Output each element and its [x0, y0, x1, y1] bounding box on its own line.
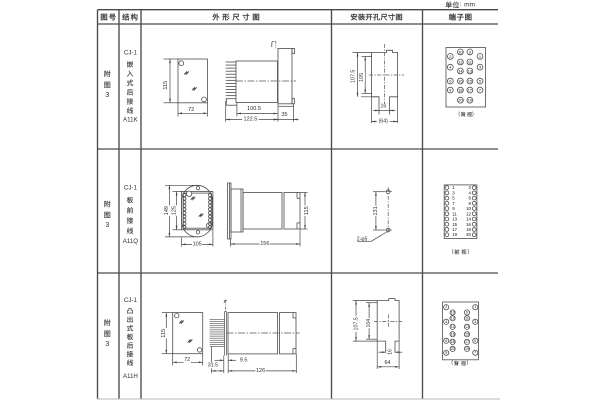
svg-text:CJ-1: CJ-1	[124, 185, 138, 192]
svg-text:16: 16	[458, 79, 462, 84]
svg-text:17: 17	[465, 340, 469, 344]
svg-text:2-φ5: 2-φ5	[357, 236, 368, 242]
svg-text:122.5: 122.5	[244, 116, 258, 122]
svg-text:19: 19	[468, 98, 472, 103]
svg-text:115: 115	[304, 206, 310, 215]
svg-text:17: 17	[452, 227, 457, 232]
svg-text:3: 3	[105, 222, 109, 229]
svg-text:18: 18	[458, 88, 462, 93]
svg-text:A11Q: A11Q	[123, 238, 139, 245]
svg-text:7: 7	[474, 351, 476, 355]
svg-text:4: 4	[445, 320, 447, 324]
svg-text:2: 2	[449, 54, 451, 59]
svg-text:11: 11	[468, 60, 472, 65]
svg-text:105: 105	[193, 241, 202, 247]
svg-text:131: 131	[373, 206, 379, 215]
svg-text:13: 13	[468, 69, 472, 74]
svg-text:12: 12	[458, 60, 462, 65]
svg-text:107.5: 107.5	[351, 70, 357, 83]
svg-text:): )	[467, 360, 469, 366]
svg-text:15: 15	[465, 332, 469, 336]
svg-text:2: 2	[445, 305, 447, 309]
svg-text::: :	[460, 1, 462, 8]
svg-text:5: 5	[479, 79, 481, 84]
svg-text:9.5: 9.5	[240, 357, 248, 363]
svg-text:16: 16	[451, 332, 455, 336]
svg-text:3: 3	[105, 92, 109, 99]
svg-text:5: 5	[474, 339, 476, 343]
svg-text:11: 11	[465, 316, 469, 320]
svg-text:19: 19	[452, 232, 457, 237]
svg-text:15: 15	[468, 79, 472, 84]
svg-text:17: 17	[468, 88, 472, 93]
svg-text:31.5: 31.5	[208, 362, 218, 368]
svg-text:A11H: A11H	[123, 373, 138, 380]
svg-text:8: 8	[449, 88, 451, 93]
svg-text:14: 14	[451, 325, 455, 329]
svg-text:CJ-1: CJ-1	[124, 50, 138, 57]
svg-text:1: 1	[474, 305, 476, 309]
svg-text:115: 115	[163, 81, 169, 90]
svg-text:72: 72	[188, 107, 194, 113]
svg-text:(64): (64)	[379, 118, 388, 124]
svg-text:156: 156	[260, 241, 269, 247]
svg-text:9: 9	[466, 311, 468, 315]
svg-text:3: 3	[474, 320, 476, 324]
svg-text:126: 126	[256, 368, 265, 374]
svg-text:35: 35	[281, 112, 287, 118]
svg-text:16: 16	[381, 103, 387, 109]
svg-text:100.5: 100.5	[247, 106, 261, 112]
svg-text:20: 20	[451, 347, 455, 351]
svg-text:3: 3	[479, 65, 481, 70]
svg-text:CJ-1: CJ-1	[124, 297, 138, 304]
svg-text:18: 18	[451, 340, 455, 344]
svg-text:A11K: A11K	[123, 117, 139, 124]
svg-text:125: 125	[171, 206, 177, 215]
svg-text:6: 6	[445, 339, 447, 343]
svg-text:(: (	[452, 249, 454, 255]
svg-text:8: 8	[445, 351, 447, 355]
svg-text:18: 18	[466, 227, 471, 232]
svg-text:10: 10	[451, 311, 455, 315]
svg-text:20: 20	[466, 232, 471, 237]
svg-text:): )	[472, 111, 474, 117]
svg-text:mm: mm	[464, 1, 475, 8]
svg-text:(: (	[458, 111, 460, 117]
svg-text:(: (	[451, 360, 453, 366]
svg-text:12: 12	[451, 316, 455, 320]
svg-text:6: 6	[449, 79, 451, 84]
svg-text:1: 1	[479, 54, 481, 59]
svg-text:64: 64	[384, 360, 390, 366]
svg-text:105: 105	[359, 73, 365, 82]
svg-text:104: 104	[366, 319, 372, 328]
svg-text:72: 72	[184, 357, 190, 363]
svg-text:): )	[468, 249, 470, 255]
svg-text:14: 14	[466, 217, 471, 222]
svg-text:16: 16	[387, 349, 393, 355]
svg-text:107.5: 107.5	[354, 317, 360, 330]
svg-text:149: 149	[164, 206, 170, 215]
svg-text:3: 3	[105, 341, 109, 348]
svg-text:19: 19	[465, 347, 469, 351]
svg-text:115: 115	[161, 329, 167, 338]
svg-text:7: 7	[479, 88, 481, 93]
svg-text:13: 13	[452, 217, 457, 222]
svg-text:13: 13	[465, 325, 469, 329]
svg-text:9: 9	[469, 49, 471, 54]
